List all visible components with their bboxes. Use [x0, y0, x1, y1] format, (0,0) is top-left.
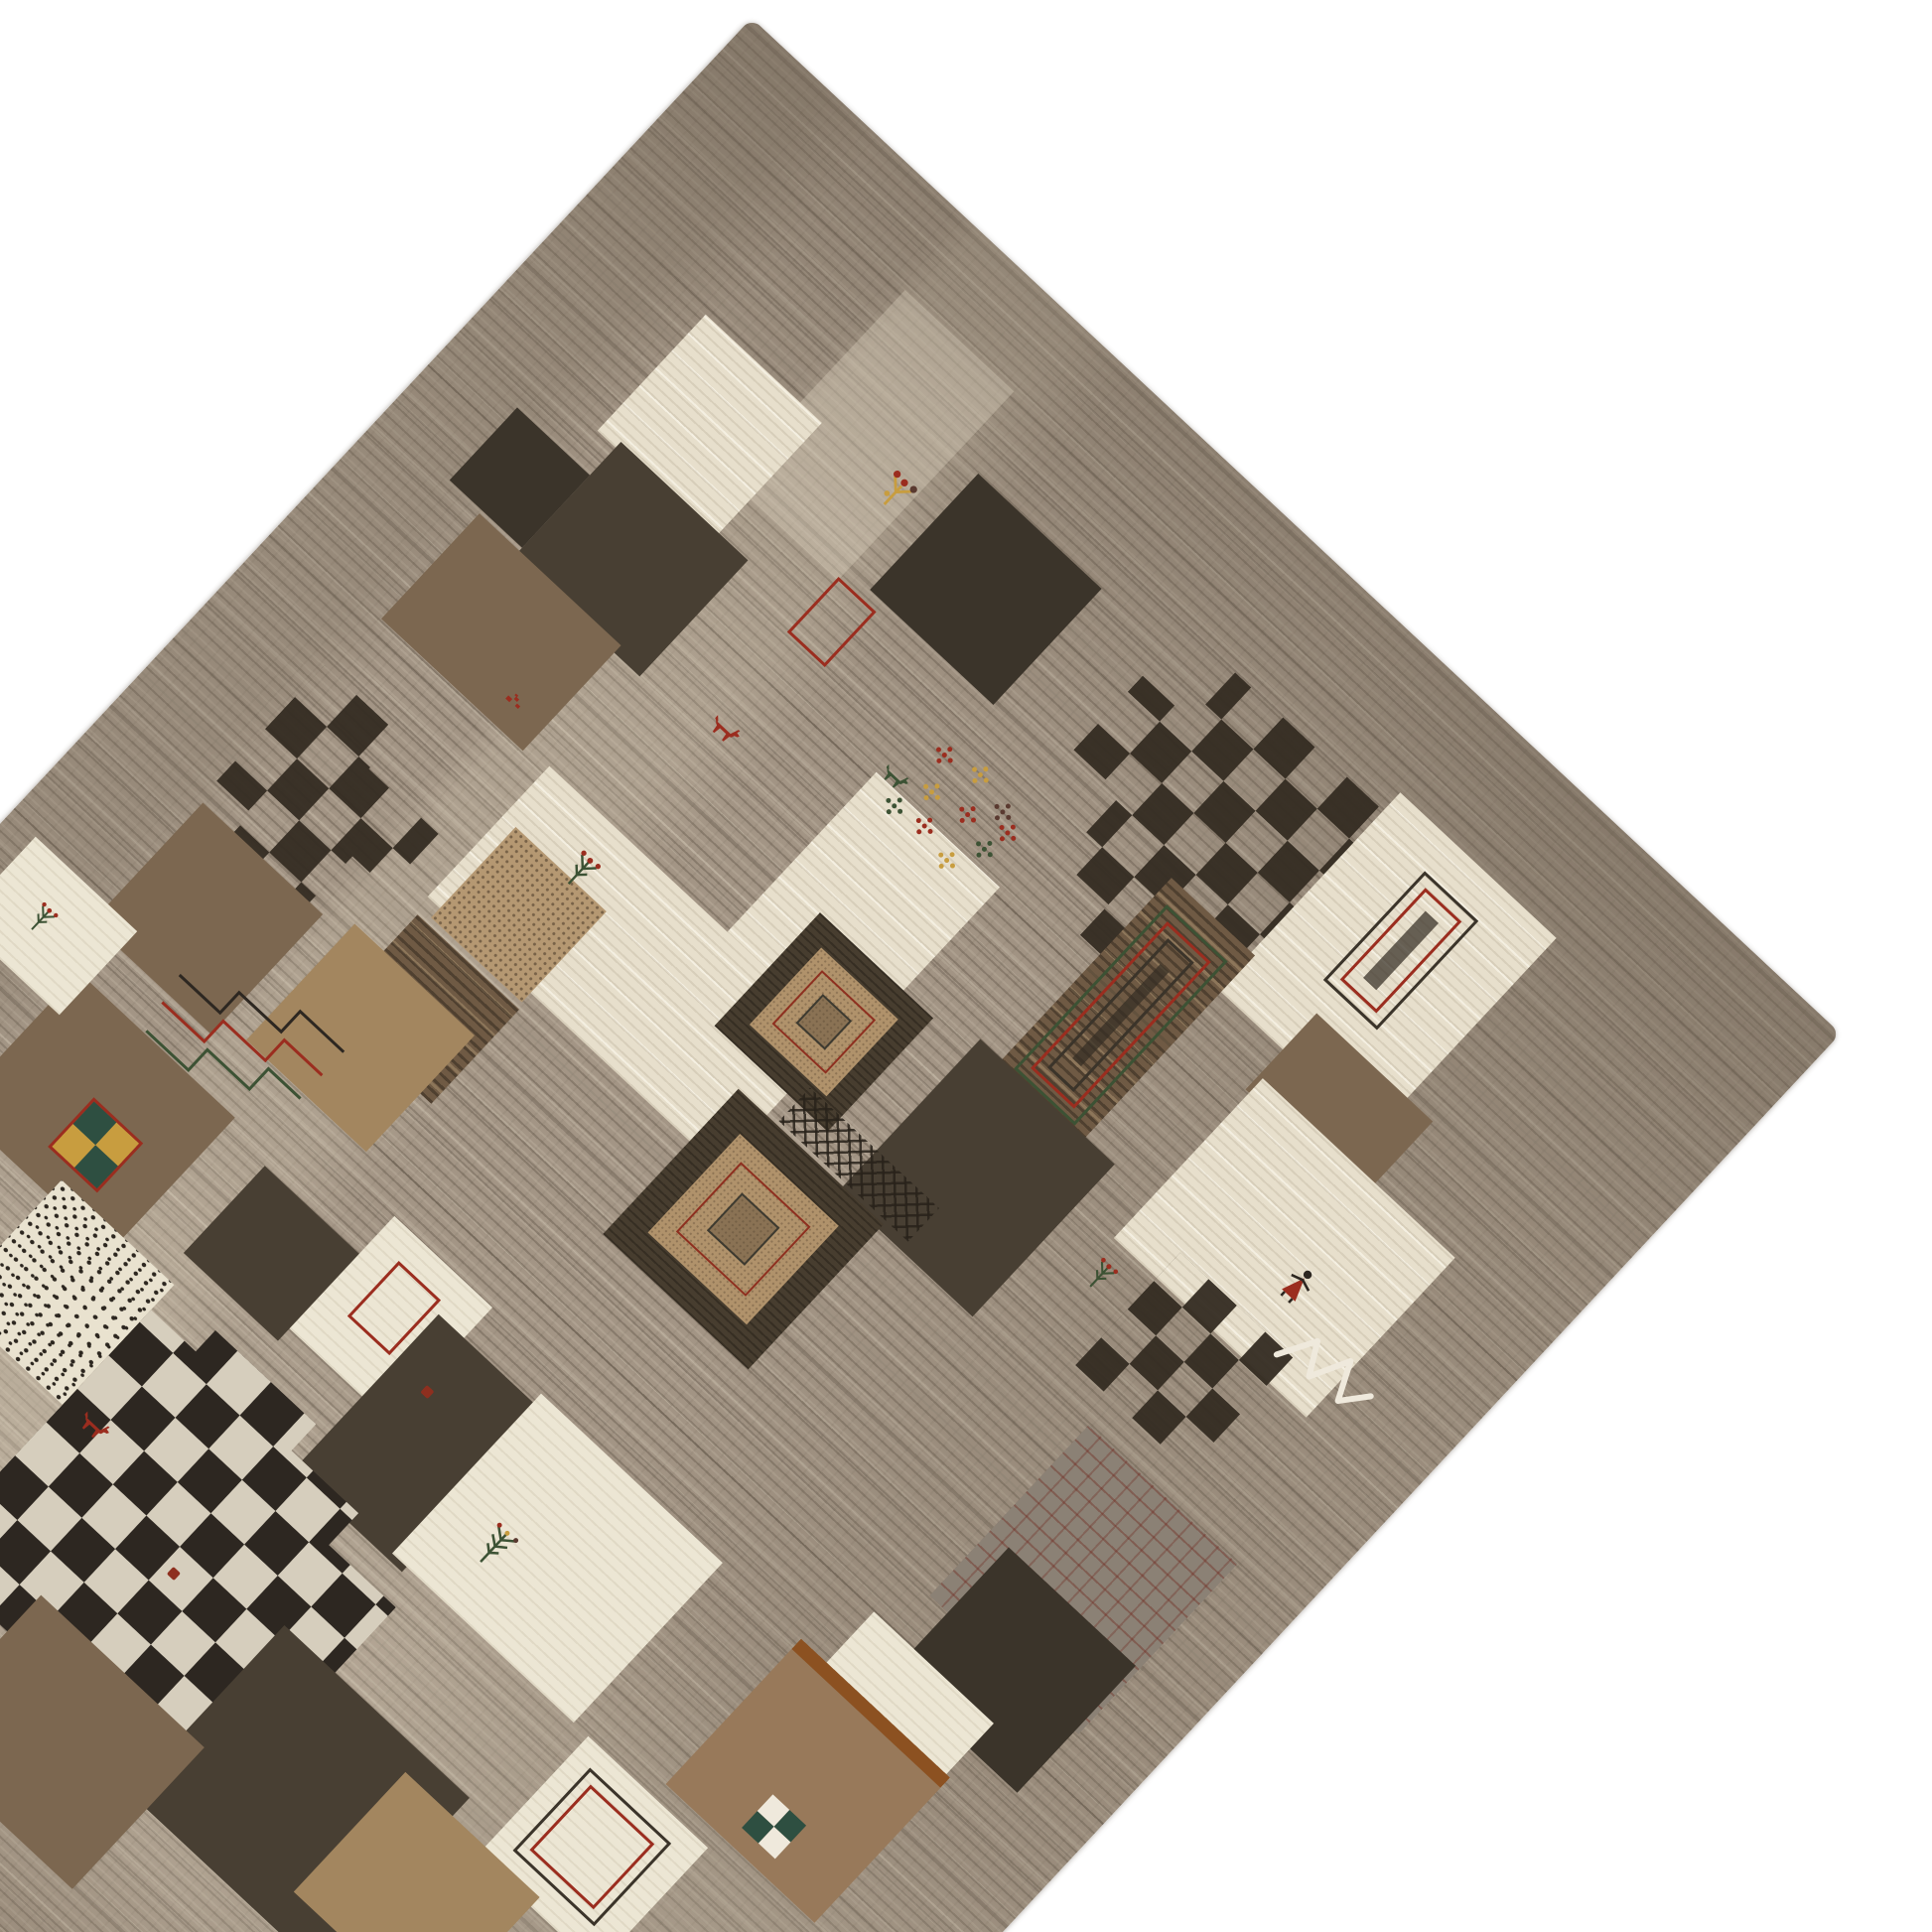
rug-motif-sprig — [1075, 1248, 1129, 1302]
rug-patch-cream — [0, 837, 137, 1016]
rug-motif-outlinerect — [787, 577, 877, 667]
rug-motif-animal — [698, 706, 752, 759]
rug — [0, 18, 1841, 1932]
photo-canvas — [0, 0, 1932, 1932]
rug-surface — [0, 18, 1841, 1932]
